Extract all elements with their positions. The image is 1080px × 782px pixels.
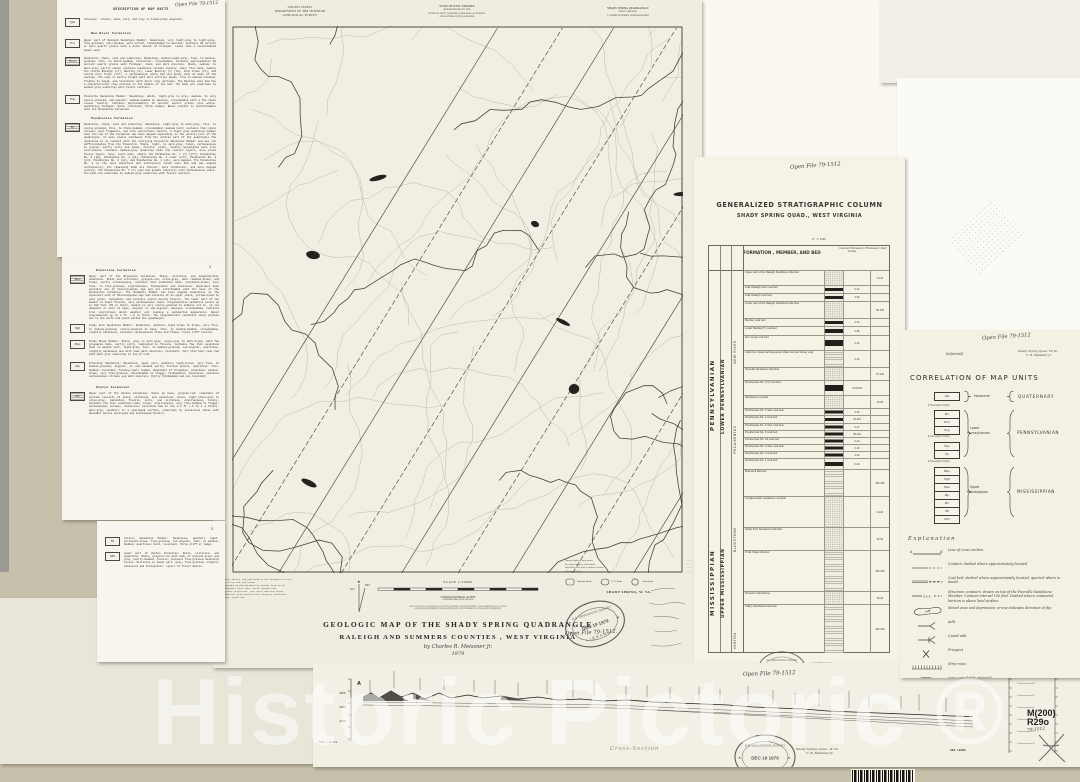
- strat-row: Pocahontas No. 2 coal bed4-40: [743, 451, 889, 458]
- epoch-label-holocene: Holocene: [974, 394, 990, 398]
- strat-coal-thickness: [843, 271, 870, 285]
- map-unit-text: Upper part of the Hinton Formation: Shal…: [89, 392, 219, 415]
- explanation-label: Caved adit: [948, 634, 1066, 638]
- map-unit-symbol-box: Mps: [70, 340, 85, 349]
- page-number-3: 3: [211, 527, 213, 531]
- explanation-label: Area completely stripped: [948, 676, 1066, 678]
- xsec-sea-level-left: SEA LEVEL: [319, 741, 338, 744]
- svg-text:x x x: x x x: [923, 595, 931, 599]
- strat-row-label: Pocahontas No. 3 rider coal bed: [743, 424, 824, 430]
- strat-coal-thickness: 0-36: [843, 327, 870, 335]
- description-page3-body: MtTallery Sandstone Member: Sandstone, w…: [97, 537, 225, 568]
- strat-row-label: Pocahontas No. 2 rider coal bed: [743, 445, 824, 451]
- map-unit-symbol-box: Mt: [105, 537, 120, 546]
- correlation-brace: [962, 391, 972, 402]
- map-unit-symbol-box: Mh: [70, 392, 85, 401]
- coal-bed-icon: ?: [910, 576, 944, 587]
- strat-system-label: PENNSYLVANIAN: [710, 301, 716, 431]
- explanation-label: Coal bed: dashed where approximately loc…: [948, 576, 1066, 585]
- strat-row: Pocahontas No. 3A coal bed0-24: [743, 437, 889, 444]
- route-type: U. S. Route: [600, 578, 623, 586]
- correlation-brace: [1006, 391, 1016, 402]
- explanation-label: Adit: [948, 620, 1066, 624]
- strat-left-columns: PENNSYLVANIANMISSISSIPPIANLOWER PENNSYLV…: [709, 246, 744, 652]
- explanation-symbol: ?: [910, 576, 948, 587]
- strat-system-label: MISSISSIPPIAN: [710, 486, 716, 616]
- scale-bar: [373, 586, 543, 594]
- xsec-quad-note-line2: C. R. Meissner Jr.: [806, 751, 839, 755]
- strat-coal-thickness: [843, 592, 870, 604]
- strat-coal-thickness: 4-40: [843, 452, 870, 458]
- strat-lithology-cell: [824, 351, 843, 367]
- explanation-title: Explanation: [908, 536, 956, 542]
- sale-note-2: A FOLDER DESCRIBING TOPOGRAPHIC MAPS AND…: [363, 608, 553, 610]
- system-label-pennsylvanian: PENNSYLVANIAN: [1017, 430, 1059, 435]
- explanation-list: AA'Line of cross sectionContact: dashed …: [910, 548, 1074, 678]
- map-header-center: STATE OF WEST VIRGINIA REPRESENTED BY TH…: [397, 4, 517, 19]
- xsec-sea-level-right: SEA LEVEL: [950, 749, 966, 752]
- page-number-2: 2: [209, 265, 211, 269]
- strat-coal-thickness: 0-20: [843, 459, 870, 469]
- strat-thickness: 180-250: [870, 551, 889, 591]
- header-center-line4: AND OTHER STATE AGENCIES: [397, 15, 517, 19]
- strat-row-label: Pocahontas No. 4 coal bed: [743, 416, 824, 423]
- strat-coal-thickness: 4-70: [843, 319, 870, 326]
- strat-thickness: [870, 294, 889, 301]
- strat-thickness: [870, 381, 889, 395]
- explanation-symbol: [910, 662, 948, 673]
- strat-row: Pocahontas No. 4 coal bed18-210: [743, 415, 889, 423]
- strat-coal-thickness: [843, 302, 870, 318]
- map-unit-text: Pride Shale Member: Shale, gray to dark-…: [89, 340, 219, 356]
- strat-row: Little Fire Creek carbonaceous shale bed…: [743, 350, 889, 367]
- strat-thickness: [870, 438, 889, 444]
- system-label-mississippian: MISSISSIPPIAN: [1017, 489, 1055, 494]
- explanation-item: Prospect: [910, 648, 1074, 659]
- map-unit-text: Princeton Sandstone: Sandstone, upper pa…: [89, 362, 219, 378]
- map-unit-description: PnrUpper part of Raleigh Sandstone Membe…: [57, 39, 225, 52]
- strat-row: Sandstone member30-60: [743, 395, 889, 408]
- svg-text:★: ★: [357, 579, 361, 584]
- strat-row: Pocahontas No. 3 rider coal bed0-27: [743, 423, 889, 430]
- explanation-symbol: [910, 676, 948, 678]
- explanation-item: AA'Line of cross section: [910, 548, 1074, 559]
- strat-lithology-cell: [824, 416, 843, 423]
- ink-bleed-ghost: [947, 198, 1025, 275]
- correlation-unit: Mhl: [935, 516, 959, 523]
- unconformity-label: Unconformity: [928, 403, 950, 407]
- strat-lithology-cell: [824, 470, 843, 496]
- route-shield-icon: [630, 578, 640, 586]
- map-unit-text: Pineville Sandstone Member: Sandstone, w…: [84, 95, 216, 111]
- strat-row: Lower Beckley(?) coal bed0-36: [743, 326, 889, 335]
- strat-header-coal: Coal bed thickness (in inches): [839, 248, 865, 254]
- library-stamp-xsec: U.S. GEOLOGICAL SURVEYDEC 19 1979LIBRARY…: [733, 733, 797, 767]
- explanation-label: Mined area and depression; arrow indicat…: [948, 606, 1066, 610]
- strat-lithology-cell: [824, 497, 843, 527]
- strat-col-divider-2: [731, 246, 732, 652]
- strat-scale-note: 1" = 100': [812, 237, 826, 241]
- map-header-right: SHADY SPRING QUADRANGLE WEST VIRGINIA 7.…: [573, 6, 683, 18]
- svg-text:3000': 3000': [339, 691, 346, 695]
- map-unit-description: PpSandstone, shale, coal and underclay: …: [57, 123, 225, 175]
- map-scale-block: SCALE 1:24000 CONTOUR INTERVAL 40 FEET D…: [363, 580, 553, 610]
- scan-left-edge: [0, 0, 9, 572]
- header-left-line3: GEOLOGICAL SURVEY: [240, 14, 360, 18]
- strat-row-label: Lower part of the Raleigh Sandstone Memb…: [743, 302, 824, 318]
- strat-coal-thickness: 0-16: [843, 445, 870, 451]
- strat-row-label: Pride Shale Member: [743, 551, 824, 591]
- prospect-icon: [910, 648, 944, 659]
- unconformity-label: Unconformity: [928, 459, 950, 463]
- xsec-quad-note: Shady Spring Quad., W. Va. C. R. Meissne…: [796, 747, 839, 755]
- topographic-map-body: [232, 26, 683, 573]
- strat-lithology-cell: [824, 271, 843, 285]
- strat-thickness: 150-200: [870, 605, 889, 653]
- road-symbol: ———: [686, 571, 693, 575]
- explanation-symbol: [910, 606, 948, 617]
- road-class-line: Unimproved road———: [565, 571, 693, 575]
- correlation-unit: Pnr: [935, 411, 959, 419]
- strat-row: Pocahontas No. 3 coal bed28-146: [743, 430, 889, 437]
- strat-coal-thickness: 0-27: [843, 424, 870, 430]
- open-file-annotation-strat: Open File 79-1512: [790, 161, 841, 171]
- scale-label: SCALE 1:24000: [363, 580, 553, 584]
- map-unit-symbol-box: Mhl: [105, 552, 120, 561]
- svg-text:★: ★: [616, 615, 621, 620]
- explanation-symbol: [910, 648, 948, 659]
- map-header-left: UNITED STATES DEPARTMENT OF THE INTERIOR…: [240, 6, 360, 19]
- route-type: Interstate Route: [565, 578, 592, 586]
- correlation-unit: Mgf: [935, 476, 959, 484]
- strat-table: FORMATION , MEMBER, AND BEDCoal bed thic…: [708, 245, 890, 653]
- svg-text:LIBRARY: LIBRARY: [586, 630, 612, 642]
- datum-note: DATUM IS MEAN SEA LEVEL: [363, 599, 553, 601]
- explanation-item: ?Coal bed: dashed where approximately lo…: [910, 576, 1074, 587]
- map-unit-symbol-box: Mp: [70, 362, 85, 371]
- strat-column-sheet: Open File 79-1512 GENERALIZED STRATIGRAP…: [694, 157, 905, 694]
- explanation-label: Strip mine: [948, 662, 1066, 666]
- quaternary-unit-box: Qal: [934, 392, 960, 401]
- strat-row-label: Upper part of the Raleigh Sandstone Memb…: [743, 271, 824, 285]
- strat-lithology-cell: [824, 396, 843, 408]
- strat-coal-thickness: 0-22: [843, 286, 870, 293]
- strat-row: Pocahontas No. 2 rider coal bed0-16: [743, 444, 889, 451]
- strat-coal-thickness: 0-12: [843, 351, 870, 367]
- strat-row-label: Bramwell Member: [743, 470, 824, 496]
- strip-mine-icon: [910, 662, 944, 673]
- strat-lithology-cell: [824, 327, 843, 335]
- map-credit-block: Mapped, edited, and published by the Geo…: [221, 578, 346, 600]
- map-unit-description: MhlLower part of Hinton Formation: Shale…: [97, 552, 225, 568]
- strat-lithology-cell: [824, 445, 843, 451]
- strat-row: Glady Fork Sandstone Member42-90: [743, 527, 889, 550]
- strat-thickness: [870, 409, 889, 415]
- map-unit-description: PnrcSandstone, shale, coal and underclay…: [57, 57, 225, 89]
- correlation-unit: Mbu: [935, 468, 959, 476]
- map-unit-description: MhUpper part of the Hinton Formation: Sh…: [62, 392, 225, 415]
- strat-thickness: [870, 286, 889, 293]
- strat-row: Pocahontas No. 1 coal bed0-20: [743, 458, 889, 469]
- correlation-unit: Pp: [935, 451, 959, 458]
- strat-formation-label: HINTON: [733, 579, 737, 649]
- formation-heading: Hinton Formation: [62, 386, 225, 389]
- strat-row: Little Raleigh coal bed4-30: [743, 293, 889, 301]
- formation-heading: Pocahontas Formation: [57, 117, 225, 120]
- strat-row-label: Sandstone member: [743, 396, 824, 408]
- explanation-symbol: [910, 620, 948, 631]
- strat-lithology-cell: [824, 286, 843, 293]
- formation-heading: Bluestone Formation: [62, 269, 225, 272]
- barcode-sticker: [851, 769, 915, 782]
- pennsylvanian-unit-box-2: PpsPp: [934, 442, 960, 459]
- strat-row-label: Conglomeratic sandstone member: [743, 497, 824, 527]
- pennsylvanian-unit-box-1: PnrPnrcPnp: [934, 410, 960, 435]
- map-unit-symbol-box: Pnp: [65, 95, 80, 104]
- route-type-label: Interstate Route: [577, 581, 592, 583]
- strat-lithology-cell: [824, 459, 843, 469]
- explanation-item: Contact: dashed where approximately loca…: [910, 562, 1074, 573]
- map-unit-text: Sandstone, shale, coal and underclay: Sa…: [84, 123, 216, 175]
- strat-coal-thickness: 18-210: [843, 416, 870, 423]
- strat-coal-thickness: 0-12: [843, 409, 870, 415]
- map-unit-description: MbuUpper part of the Bluestone Formation…: [62, 275, 225, 320]
- mined-area-icon: [910, 606, 944, 617]
- strat-thickness: 100-150: [870, 470, 889, 496]
- structure-contour-icon: x x x: [910, 590, 944, 601]
- svg-text:GN: GN: [350, 587, 355, 591]
- svg-text:U.S. GEOLOGICAL SURVEY: U.S. GEOLOGICAL SURVEY: [766, 659, 798, 662]
- map-unit-symbol-box: Mbu: [70, 275, 85, 284]
- strat-row-label: Glady Fork Sandstone Member: [743, 528, 824, 550]
- catalog-number-block: M(200) R29o 79-1512: [1027, 709, 1056, 732]
- caved-adit-icon: [910, 634, 944, 645]
- strat-table-body: Upper part of the Raleigh Sandstone Memb…: [743, 270, 889, 653]
- route-type-label: U. S. Route: [612, 581, 623, 583]
- strat-formation-label: NEW RIVER: [733, 294, 737, 364]
- strat-row: Pride Shale Member180-250: [743, 550, 889, 591]
- strat-lithology-cell: [824, 368, 843, 380]
- svg-text:2000': 2000': [339, 705, 346, 709]
- strat-lithology-cell: [824, 438, 843, 444]
- strat-lithology-cell: [824, 302, 843, 318]
- blank-sheet-top-b: [880, 0, 1080, 83]
- explanation-item: Mined area and depression; arrow indicat…: [910, 606, 1074, 617]
- svg-text:★: ★: [738, 756, 742, 760]
- strat-thickness: [870, 452, 889, 458]
- svg-text:U.S. GEOLOGICAL SURVEY: U.S. GEOLOGICAL SURVEY: [745, 744, 786, 748]
- strat-row: Pineville Sandstone Member57-148: [743, 367, 889, 380]
- strat-title: GENERALIZED STRATIGRAPHIC COLUMN: [694, 201, 905, 209]
- correlation-unit: Pps: [935, 443, 959, 451]
- correlation-unit: Qal: [935, 393, 959, 400]
- strat-row-label: Lower Beckley(?) coal bed: [743, 327, 824, 335]
- epoch-label-upper-miss: Upper: [970, 485, 980, 489]
- adit-icon: [910, 620, 944, 631]
- map-unit-symbol-box: Pnrc: [65, 57, 80, 66]
- description-title: DESCRIPTION OF MAP UNITS: [57, 7, 225, 11]
- correlation-brace: [1006, 467, 1016, 517]
- strat-row-label: Pocahontas No. 3A coal bed: [743, 438, 824, 444]
- map-unit-description: MtTallery Sandstone Member: Sandstone, w…: [97, 537, 225, 547]
- pencil-scribbles: [645, 583, 695, 658]
- strat-row-label: Pineville Sandstone Member: [743, 368, 824, 380]
- strat-thickness: [870, 319, 889, 326]
- map-unit-description: QalAlluvium - Gravel, sand, silt, and cl…: [57, 18, 225, 27]
- map-unit-description: PnpPineville Sandstone Member: Sandstone…: [57, 95, 225, 111]
- strat-row: Upper part of the Raleigh Sandstone Memb…: [743, 270, 889, 285]
- strat-thickness: [870, 416, 889, 423]
- svg-text:A': A': [940, 550, 943, 554]
- strat-thickness: 86-135: [870, 302, 889, 318]
- explanation-label: Contact: dashed where approximately loca…: [948, 562, 1066, 566]
- map-unit-description: MgfGlady Fork Sandstone Member: Sandston…: [62, 324, 225, 334]
- strat-row-label: Princeton Sandstone: [743, 592, 824, 604]
- strat-thickness: 25-40: [870, 592, 889, 604]
- strat-row: Pocahontas No. 4 rider coal bed0-12: [743, 408, 889, 415]
- strat-coal-thickness: 4-30: [843, 294, 870, 301]
- description-page1-body: QalAlluvium - Gravel, sand, silt, and cl…: [57, 18, 225, 175]
- description-page-2: 2 Bluestone FormationMbuUpper part of th…: [62, 257, 225, 520]
- strat-formation-label: POCAHONTAS: [733, 384, 737, 454]
- strat-row-label: Pocahontas No. 1 coal bed: [743, 459, 824, 469]
- strat-formation-label: BLUESTONE: [733, 482, 737, 552]
- correlation-unit: Pnrc: [935, 419, 959, 427]
- explanation-symbol: [910, 634, 948, 645]
- strat-coal-thickness: [843, 528, 870, 550]
- strat-thickness: 0-110: [870, 271, 889, 285]
- strat-thickness: 57-148: [870, 368, 889, 380]
- map-unit-symbol-box: Pnr: [65, 39, 80, 48]
- strat-coal-thickness: [843, 396, 870, 408]
- corr-quad-note: Shady Spring Quad., W. Va. C. R. Meissne…: [1018, 350, 1058, 358]
- correlation-sheet: Open File 79-1512 (informal) Shady Sprin…: [900, 330, 1080, 678]
- stripped-area-icon: [910, 676, 944, 678]
- catalog-line2: R29o: [1027, 718, 1056, 727]
- map-unit-description: MpsPride Shale Member: Shale, gray to da…: [62, 340, 225, 356]
- strat-lithology-cell: [824, 528, 843, 550]
- svg-text:1000': 1000': [339, 719, 346, 723]
- explanation-symbol: x x x: [910, 590, 948, 601]
- informal-note: (informal): [946, 352, 963, 356]
- description-page2-body: Bluestone FormationMbuUpper part of the …: [62, 269, 225, 415]
- strat-row-label: Little Raleigh rider coal bed: [743, 286, 824, 293]
- strat-thickness: 42-90: [870, 528, 889, 550]
- system-label-quaternary: QUATERNARY: [1018, 394, 1054, 399]
- strat-lithology-cell: [824, 424, 843, 430]
- svg-text:DEC 19 1979: DEC 19 1979: [581, 618, 609, 631]
- epoch-label-lower-penn: Lower: [970, 426, 980, 430]
- svg-text:DEC 19 1979: DEC 19 1979: [751, 756, 779, 761]
- formation-heading: New River Formation: [57, 32, 225, 35]
- strat-lithology-cell: [824, 319, 843, 326]
- mississippian-unit-box: MbuMgfMpsMpMhMtMhl: [934, 467, 960, 524]
- strat-thickness: [870, 431, 889, 437]
- strat-lithology-cell: [824, 605, 843, 653]
- svg-text:★: ★: [788, 756, 792, 760]
- correlation-unit: Mh: [935, 500, 959, 508]
- epoch-label-pennsylvanian: Pennsylvanian: [967, 431, 990, 435]
- credit-line: system, south zone: [221, 596, 346, 599]
- strat-lithology-cell: [824, 409, 843, 415]
- explanation-label: Structure contours: drawn on top of the …: [948, 590, 1066, 603]
- strat-lithology-cell: [824, 551, 843, 591]
- scanned-geologic-map-photo: DESCRIPTION OF MAP UNITS Open File 79-15…: [0, 0, 1080, 782]
- strat-thickness: [870, 336, 889, 350]
- explanation-item: Adit: [910, 620, 1074, 631]
- strat-thickness: [870, 459, 889, 469]
- map-unit-text: Sandstone, shale, coal and underclay: Sa…: [84, 57, 216, 89]
- strat-coal-thickness: 0-24: [843, 438, 870, 444]
- strat-thickness: [870, 351, 889, 367]
- strat-series-label: UPPER MISSISSIPPIAN: [721, 486, 726, 618]
- strat-row-label: Little Fire Creek carbonaceous shale bed…: [743, 351, 824, 367]
- section-line-icon: AA': [910, 548, 944, 559]
- strat-row: Fire Creek coal bed2-12: [743, 335, 889, 350]
- strat-coal-thickness: 2-12: [843, 336, 870, 350]
- strat-row-label: Fire Creek coal bed: [743, 336, 824, 350]
- strat-row-label: Pocahontas No. 4 rider coal bed: [743, 409, 824, 415]
- strat-header-main: FORMATION , MEMBER, AND BED: [743, 250, 821, 255]
- strat-row: Bramwell Member100-150: [743, 469, 889, 496]
- open-file-annotation-corr: Open File 79-1512: [982, 332, 1031, 341]
- strat-row-label: Little Raleigh coal bed: [743, 294, 824, 301]
- strat-thickness: 30-60: [870, 396, 889, 408]
- explanation-symbol: [910, 562, 948, 573]
- blank-sheet-top-a: [700, 0, 902, 157]
- strat-row-label: Pocahontas No. 3 coal bed: [743, 431, 824, 437]
- correlation-brace: [1006, 410, 1016, 457]
- strat-row: Lower part of the Raleigh Sandstone Memb…: [743, 301, 889, 318]
- explanation-label: Prospect: [948, 648, 1066, 652]
- map-unit-symbol-box: Pp: [65, 123, 80, 132]
- strat-lithology-cell: [824, 592, 843, 604]
- explanation-item: Area completely stripped: [910, 676, 1074, 678]
- svg-text:A: A: [357, 681, 361, 687]
- correlation-unit: Mps: [935, 484, 959, 492]
- map-unit-text: Alluvium - Gravel, sand, silt, and clay …: [84, 18, 216, 21]
- corr-quad-note-line2: C. R. Meissner Jr.: [1026, 354, 1058, 358]
- strat-row: Beckley coal bed4-70: [743, 318, 889, 326]
- strat-coal-thickness: [843, 551, 870, 591]
- explanation-item: Caved adit: [910, 634, 1074, 645]
- explanation-item: Strip mine: [910, 662, 1074, 673]
- strat-coal-thickness: 28-146: [843, 431, 870, 437]
- strat-coal-thickness: [843, 497, 870, 527]
- map-unit-symbol-box: Qal: [65, 18, 80, 27]
- explanation-symbol: AA': [910, 548, 948, 559]
- road-class-lines: Primary highway, hard surface———Secondar…: [565, 560, 693, 575]
- map-unit-text: Lower part of Hinton Formation: Shale, s…: [124, 552, 219, 568]
- strat-header-thickness: Thickness (in feet): [865, 248, 887, 251]
- strat-row-label: Tallery Sandstone Member: [743, 605, 824, 653]
- strat-coal-thickness: 0-100-60: [843, 381, 870, 395]
- strat-row: Little Raleigh rider coal bed0-22: [743, 285, 889, 293]
- correlation-diagram: QalHoloceneQUATERNARYUnconformityPnrPnrc…: [914, 392, 1074, 532]
- blank-sheet-top-c: [897, 78, 1080, 336]
- description-page-1: DESCRIPTION OF MAP UNITS Open File 79-15…: [57, 0, 225, 257]
- strat-thickness: [870, 424, 889, 430]
- strat-coal-thickness: [843, 605, 870, 653]
- strat-row: Tallery Sandstone Member150-200: [743, 604, 889, 653]
- strat-row: Conglomeratic sandstone member0-100: [743, 496, 889, 527]
- handwritten-x-mark: [1035, 731, 1069, 765]
- strat-lithology-cell: [824, 431, 843, 437]
- unconformity-label: Unconformity: [928, 434, 950, 438]
- epoch-label-mississippian: Mississippian: [967, 490, 988, 494]
- strat-thickness: [870, 445, 889, 451]
- strat-lithology-cell: [824, 381, 843, 395]
